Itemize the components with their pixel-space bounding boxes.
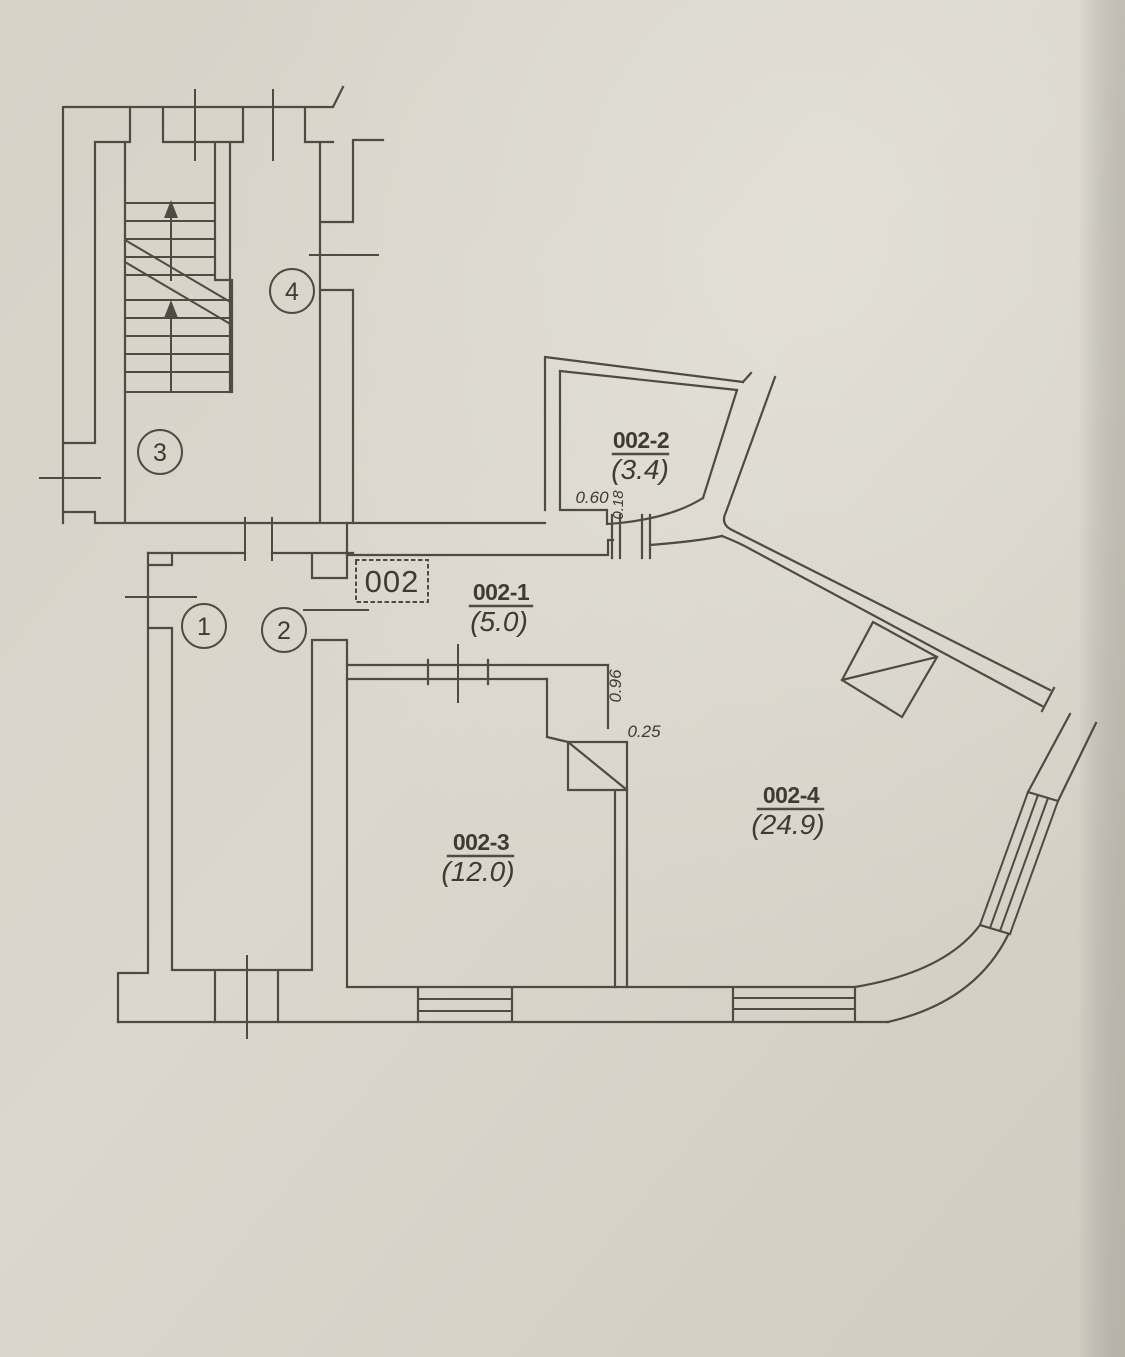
- room-area-002-4: (24.9): [751, 809, 824, 840]
- unit-002-label: 002: [365, 564, 420, 599]
- paper-right-edge-shadow: [1078, 0, 1125, 1357]
- dimension-0-18: 0.18: [610, 490, 627, 520]
- dimension-0-96: 0.96: [606, 669, 625, 703]
- dimension-0-25: 0.25: [627, 722, 661, 741]
- room-area-002-3: (12.0): [441, 856, 514, 887]
- room-area-002-1: (5.0): [470, 606, 528, 637]
- dimension-0-60: 0.60: [575, 488, 609, 507]
- room-label-002-2: 002-2: [613, 427, 669, 453]
- marker-number-2: 2: [277, 617, 291, 645]
- marker-number-3: 3: [153, 439, 167, 467]
- marker-number-1: 1: [197, 613, 211, 641]
- room-area-002-2: (3.4): [611, 454, 669, 485]
- room-label-002-4: 002-4: [763, 782, 820, 808]
- room-label-002-3: 002-3: [453, 829, 509, 855]
- room-label-002-1: 002-1: [473, 579, 530, 605]
- floor-plan-svg: 002 002-1 (5.0) 002-2 (3.4) 002-3 (12.0)…: [0, 0, 1125, 1357]
- floor-plan-page: 002 002-1 (5.0) 002-2 (3.4) 002-3 (12.0)…: [0, 0, 1125, 1357]
- marker-number-4: 4: [285, 278, 299, 306]
